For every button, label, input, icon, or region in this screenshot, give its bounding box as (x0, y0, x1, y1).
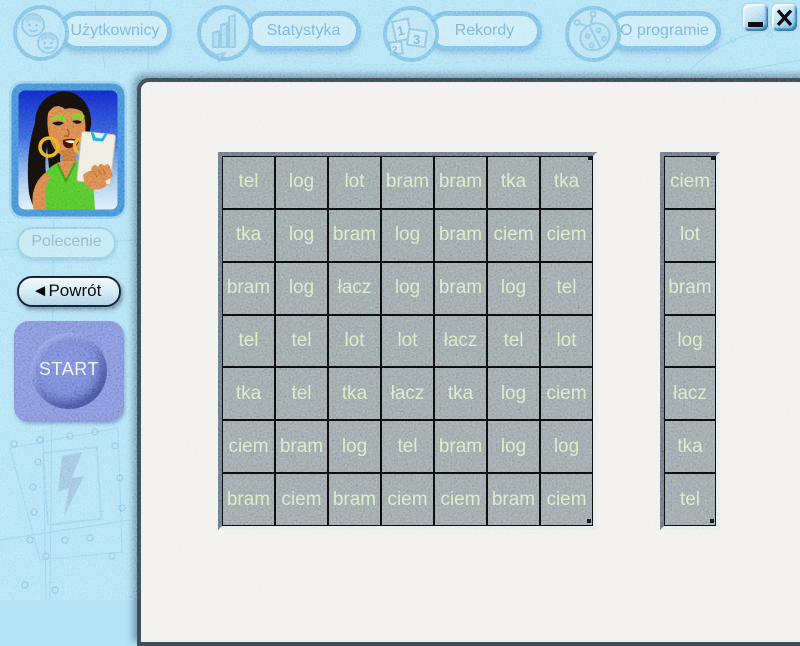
svg-text:2: 2 (392, 45, 398, 56)
svg-text:3: 3 (413, 32, 420, 47)
